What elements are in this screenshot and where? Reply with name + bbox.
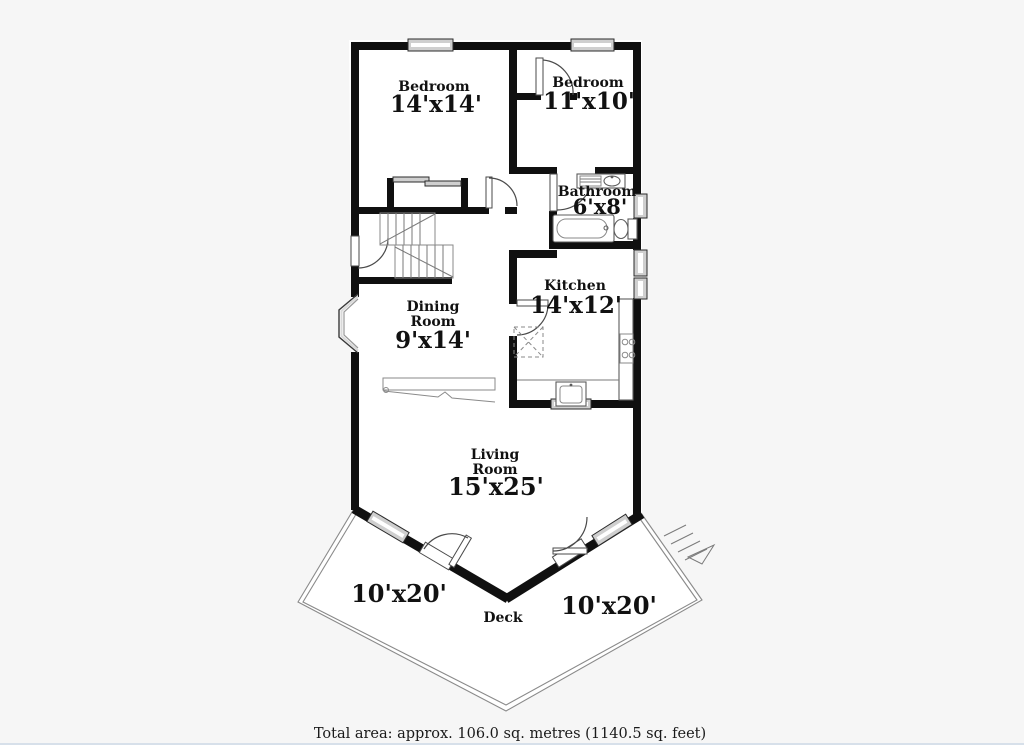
bay-window [339, 294, 358, 353]
wall-left-upper [351, 42, 359, 237]
floor-plan-page: Bedroom 14'x14' Bedroom 11'x10' Bathroom… [0, 0, 1024, 745]
wall-kitchen-bottom-right [591, 400, 641, 408]
living-name-line1: Living [471, 447, 520, 463]
window-bedroom2 [571, 39, 614, 51]
deck-left-size: 10'x20' [351, 579, 447, 608]
building-floor [349, 40, 642, 600]
wall-closet-left [387, 178, 394, 212]
deck-stairs-arrow [688, 545, 714, 564]
bathroom-sink-faucet [611, 176, 614, 179]
bathroom-size: 6'x8' [573, 194, 628, 219]
wall-kitchen-bottom-left [509, 400, 553, 408]
toilet [614, 219, 637, 239]
bedroom2-size: 11'x10' [543, 88, 635, 115]
living-size: 15'x25' [448, 472, 544, 501]
wall-closet-right [461, 178, 468, 212]
deck-label: Deck [483, 610, 523, 626]
bathtub [553, 215, 614, 242]
wall-left-lower [351, 352, 359, 510]
kitchen-size: 14'x12' [530, 292, 622, 319]
total-area-text: Total area: approx. 106.0 sq. metres (11… [314, 726, 706, 742]
wall-kitchen-left-upper [509, 250, 517, 304]
wall-hall-north-cap [505, 207, 517, 214]
wall-bathroom-top [595, 167, 641, 174]
dining-size: 9'x14' [395, 327, 471, 354]
floor-plan-drawing: Bedroom 14'x14' Bedroom 11'x10' Bathroom… [0, 0, 1024, 745]
dining-name-line1: Dining [407, 299, 460, 315]
wall-hall-bathroom [509, 167, 557, 174]
window-bedroom1 [408, 39, 453, 51]
wall-kitchen-left-lower [509, 336, 517, 408]
window-kitchen-right-1 [634, 250, 647, 276]
window-kitchen-right-2 [634, 278, 647, 299]
deck-right-size: 10'x20' [561, 591, 657, 620]
bedroom1-size: 14'x14' [390, 91, 482, 118]
wall-bedroom-divider [509, 46, 517, 171]
